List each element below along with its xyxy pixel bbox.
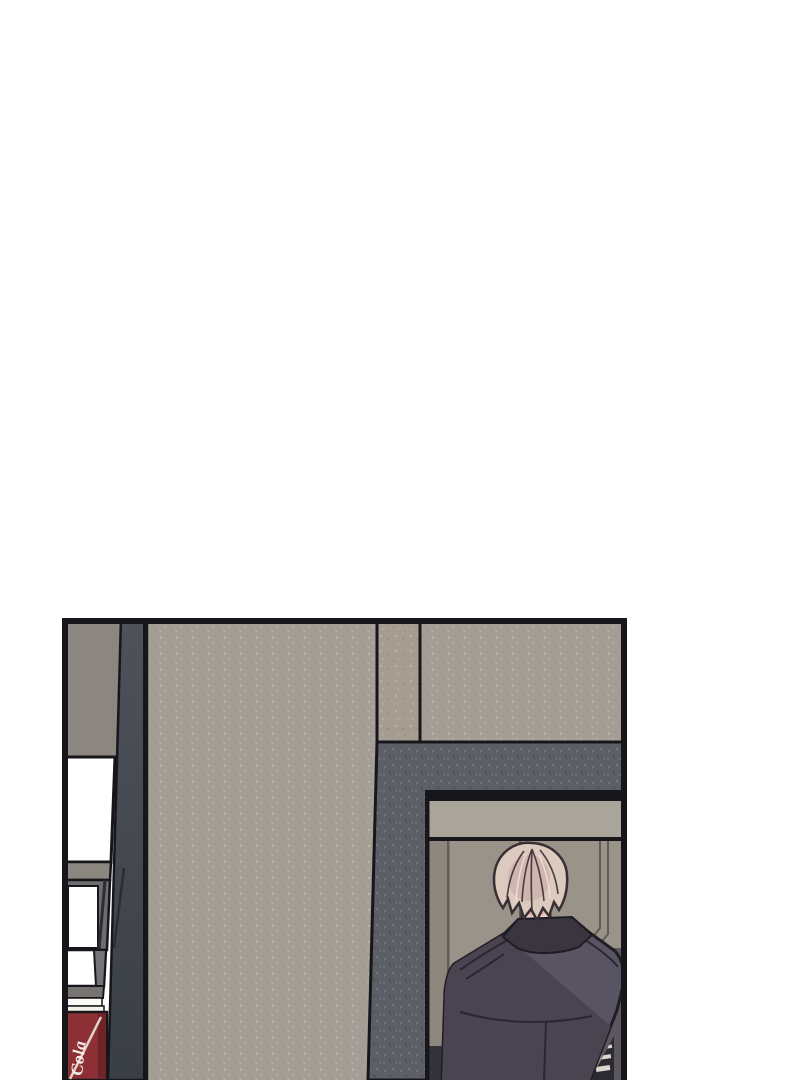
- tan-pilaster-column: [377, 618, 420, 742]
- machine-brand-text: Cola: [67, 1040, 90, 1077]
- jacket-collar: [503, 917, 592, 953]
- door-header-bar: [425, 790, 627, 801]
- panel-artwork: Cola: [62, 618, 627, 1080]
- hair-strand: [531, 849, 532, 910]
- storefront-window-jamb: [94, 950, 106, 986]
- storefront-door-glass: [68, 886, 98, 948]
- facade-corner-seam: [143, 618, 147, 1080]
- storefront-light-strip: [65, 998, 102, 1006]
- storefront: Cola: [65, 618, 147, 1080]
- door-lintel-band: [428, 801, 627, 837]
- door-left-frame: [425, 790, 430, 1080]
- webtoon-page: Cola: [0, 0, 801, 1080]
- storefront-fascia-bar: [66, 862, 111, 880]
- coca-cola-machine: Cola: [65, 1006, 107, 1080]
- storefront-sill-bar: [65, 986, 104, 998]
- comic-panel: Cola: [62, 618, 627, 1080]
- storefront-window-upper: [66, 757, 115, 862]
- lintel-bottom-line: [428, 837, 627, 841]
